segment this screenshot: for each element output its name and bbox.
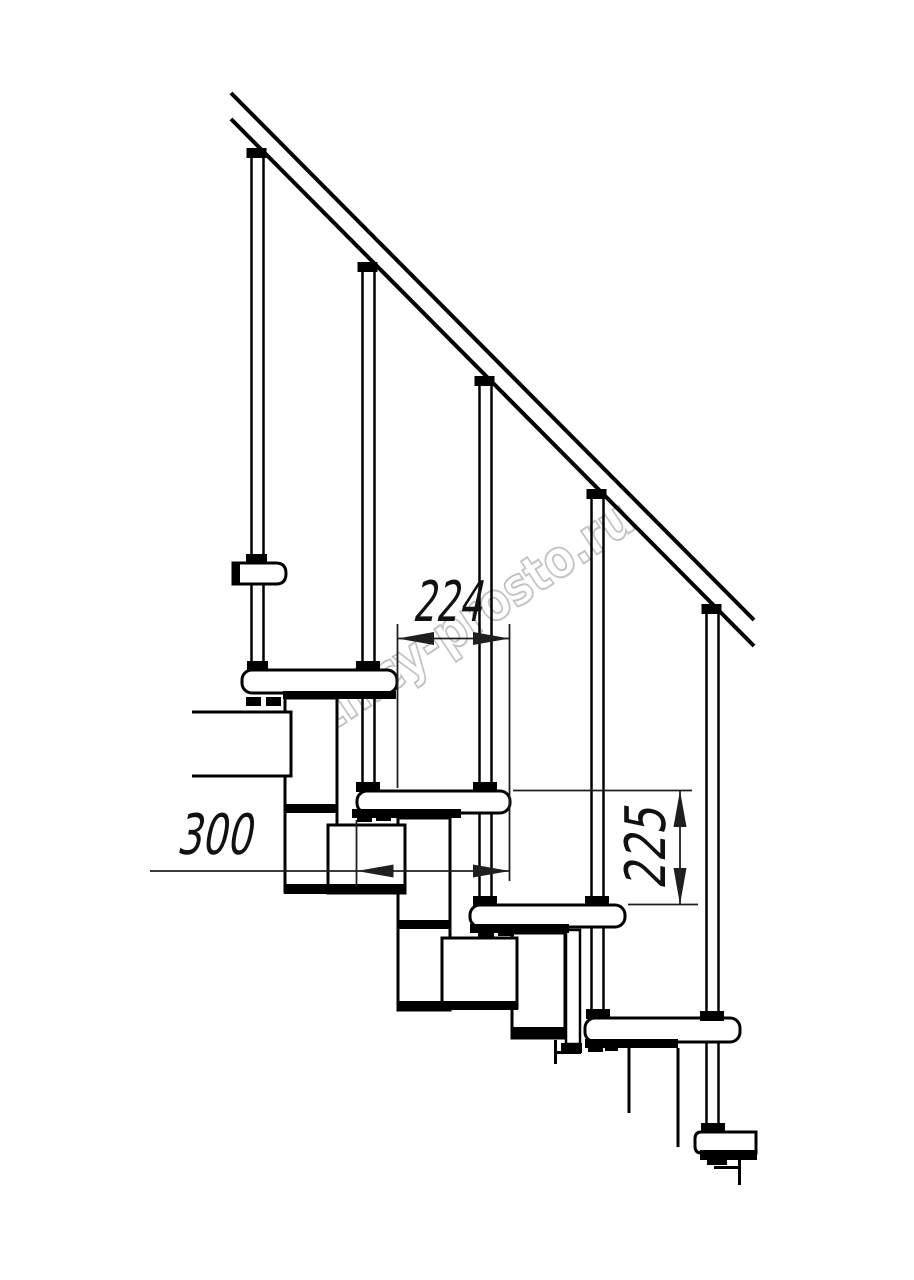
baluster-4-clamp-tread-3 bbox=[585, 896, 609, 906]
baluster-4-clamp-tread-4 bbox=[586, 1009, 610, 1019]
tread-0-cut-end bbox=[232, 562, 240, 585]
module-tube-3 bbox=[512, 933, 565, 1038]
tread-3 bbox=[470, 905, 625, 937]
dim-text-300: 300 bbox=[173, 803, 262, 868]
baluster-3-clamp-tread-2 bbox=[473, 782, 497, 792]
module-2-bottom-flange bbox=[397, 1001, 518, 1010]
baluster-1-rail-cap bbox=[247, 148, 267, 158]
tube-1-mid-flange bbox=[284, 804, 338, 813]
baluster-3-clamp-tread-3 bbox=[473, 896, 497, 906]
module-sleeve-3 bbox=[442, 938, 517, 1008]
baluster-1-clamp-tread-1 bbox=[247, 661, 268, 671]
tread-2 bbox=[352, 791, 510, 822]
baluster-1-clamp-tread-0 bbox=[246, 554, 267, 564]
baluster-2-clamp-tread-1 bbox=[356, 661, 380, 671]
baluster-2-clamp-tread-2 bbox=[356, 782, 380, 792]
dim-text-225: 225 bbox=[614, 797, 679, 893]
baluster-4-rail-cap bbox=[587, 489, 607, 499]
baluster-1 bbox=[247, 148, 267, 669]
tread-5-cut bbox=[695, 1132, 757, 1185]
baluster-5-clamp-tread-4 bbox=[700, 1011, 724, 1021]
baluster-5-clamp-tread-5 bbox=[701, 1123, 725, 1133]
tread-4 bbox=[585, 1018, 740, 1052]
upper-floor-arm bbox=[192, 712, 291, 776]
staircase-drawing-page: lestnicy-prosto.ru bbox=[0, 0, 914, 1280]
module-sleeve-2 bbox=[328, 825, 405, 893]
module-1-bottom-flange bbox=[284, 884, 406, 894]
baluster-5 bbox=[702, 604, 722, 1132]
tread-0-upper-landing bbox=[232, 562, 286, 585]
dim-text-224: 224 bbox=[409, 570, 492, 635]
tube-2-mid-flange bbox=[397, 920, 451, 929]
modular-staircase-side-view: lestnicy-prosto.ru bbox=[0, 0, 914, 1280]
tube-3-bottom-flange bbox=[511, 1027, 566, 1038]
cut-lines bbox=[556, 1040, 679, 1147]
baluster-2-rail-cap bbox=[358, 262, 378, 272]
baluster-3-rail-cap bbox=[475, 376, 495, 386]
dimension-rise-225: 225 bbox=[513, 791, 698, 905]
baluster-5-rail-cap bbox=[702, 604, 722, 614]
module-pipe-4 bbox=[566, 930, 580, 1044]
